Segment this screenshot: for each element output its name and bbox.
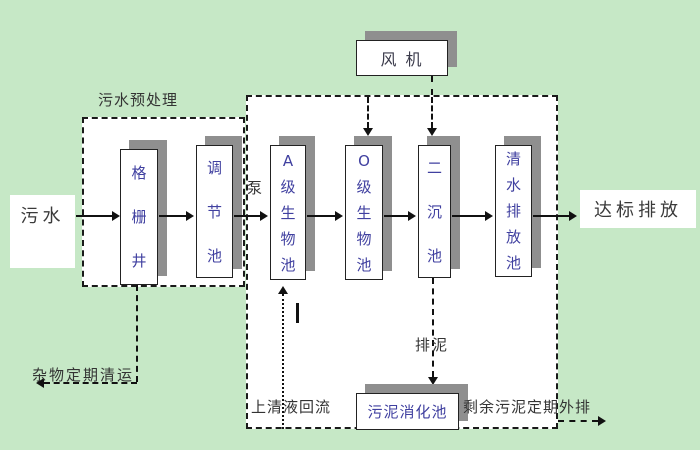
clear-water-tank-label: 清 水 排 放 池 (506, 146, 521, 276)
effluent-label: 达标排放 (594, 196, 682, 222)
pretreatment-title: 污水预处理 (98, 89, 178, 110)
pump-label: 泵 (247, 177, 262, 198)
debris-removal-label: 杂物定期清运 (32, 364, 134, 385)
excess-sludge-label: 剩余污泥定期外排 (463, 396, 591, 417)
arrow-gridwell-to-regulating (159, 215, 186, 217)
secondary-clarifier-label: 二 沉 池 (427, 146, 442, 278)
influent-node: 污水 (10, 195, 75, 268)
grid-well-label: 格 栅 井 (131, 151, 146, 283)
effluent-node: 达标排放 (580, 190, 696, 228)
excess-sludge-arrow-right (558, 420, 598, 422)
arrow-abio-to-obio (307, 215, 335, 217)
regulating-tank-node: 调 节 池 (196, 145, 233, 278)
sludge-digester-label: 污泥消化池 (367, 401, 447, 422)
arrow-obio-to-secondary (384, 215, 408, 217)
regulating-tank-label: 调 节 池 (207, 146, 222, 278)
wastewater-flow-diagram: 污水预处理 泵 杂物定期清运 上清液回流 排泥 剩余污泥定期外排 污水 达标排放… (0, 0, 700, 450)
stray-tick-mark (296, 303, 299, 323)
air-arrow-to-obio (367, 97, 369, 128)
arrow-influent-to-gridwell (76, 215, 112, 217)
arrow-secondary-to-clearwater (452, 215, 485, 217)
blower-stub-line (431, 76, 433, 95)
debris-line-vertical (136, 285, 138, 382)
blower-node: 风 机 (356, 40, 448, 76)
arrow-regulating-to-abio (234, 215, 260, 217)
clear-water-tank-node: 清 水 排 放 池 (495, 145, 532, 277)
a-bio-tank-node: A 级 生 物 池 (270, 145, 306, 280)
sludge-digester-node: 污泥消化池 (356, 393, 459, 430)
sludge-arrow-to-digester (432, 278, 434, 377)
blower-label: 风 机 (380, 46, 423, 70)
supernatant-return-label: 上清液回流 (251, 396, 331, 417)
air-arrow-to-secondary (431, 97, 433, 128)
o-bio-tank-label: O 级 生 物 池 (356, 148, 371, 278)
secondary-clarifier-node: 二 沉 池 (418, 145, 451, 278)
grid-well-node: 格 栅 井 (120, 149, 158, 285)
a-bio-tank-label: A 级 生 物 池 (280, 148, 295, 278)
sludge-discharge-label: 排泥 (415, 334, 449, 355)
arrow-clearwater-to-effluent (533, 215, 569, 217)
influent-label: 污水 (21, 202, 65, 228)
o-bio-tank-node: O 级 生 物 池 (345, 145, 383, 280)
